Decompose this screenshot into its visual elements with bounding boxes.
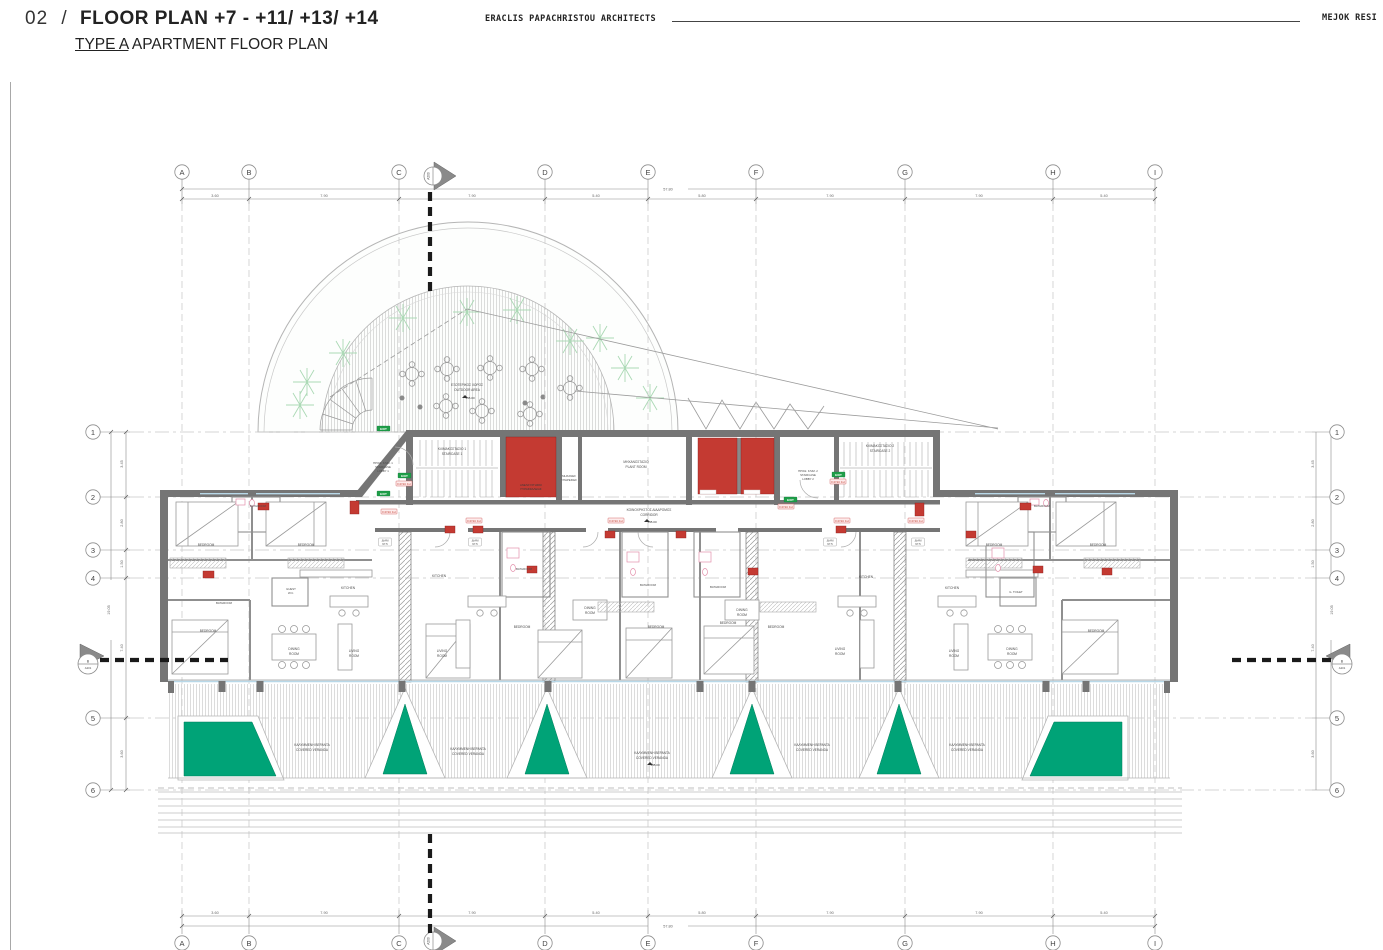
room-label-corridor: ΚΟΙΝΟΧΡΗΣΤΟΣ ΔΙΑΔΡΟΜΟΣ — [627, 508, 672, 512]
grid-bubbles-bottom: A B C D E F G H I — [175, 936, 1162, 950]
grid-number: 5 — [91, 714, 95, 723]
veranda — [158, 680, 1182, 788]
area-tag: 97.5 — [472, 542, 478, 546]
dim-text: 7.40 — [1311, 644, 1315, 651]
grid-letter: A — [179, 939, 184, 948]
dim-text: 3.60 — [211, 911, 218, 915]
fire-tag: F.R.SC 1H — [835, 519, 848, 523]
dim-text: 3.60 — [1311, 750, 1315, 757]
grid-letter: H — [1050, 939, 1055, 948]
room-label-kitchen: KITCHEN — [341, 586, 356, 590]
dim-text: 3.60 — [211, 194, 218, 198]
grid-letter: D — [542, 939, 548, 948]
sheet-page: 02 / FLOOR PLAN +7 - +11/ +13/ +14 TYPE … — [0, 0, 1383, 950]
grid-letter: H — [1050, 168, 1055, 177]
elevator-2 — [741, 438, 774, 494]
dim-text: 5.80 — [698, 194, 705, 198]
grid-letter: A — [179, 168, 184, 177]
fire-tag: F.R.SC 1H — [467, 519, 480, 523]
section-marker-top: A200 — [424, 162, 456, 190]
dim-text: 5.40 — [1100, 911, 1107, 915]
room-label-veranda: COVERED VERANDA — [951, 748, 984, 752]
dim-text: 5.40 — [592, 194, 599, 198]
grid-letter: G — [902, 939, 908, 948]
room-label-dining: ROOM — [737, 613, 747, 617]
room-label-veranda: COVERED VERANDA — [796, 748, 829, 752]
fire-tag: F.R.SC 1H — [609, 519, 622, 523]
room-label-services: ΥΠΗΡΕΣΙΕΣ — [561, 478, 577, 482]
exit-tag: EXIT — [380, 427, 387, 431]
outdoor-area-label-en: OUTDOOR AREA — [454, 388, 481, 392]
room-label-veranda: ΚΑΛΥΜΜΕΝΗ ΒΕΡΑΝΤΑ — [949, 743, 985, 747]
room-label-dining: ROOM — [585, 611, 595, 615]
section-sheet-ref: A201 — [85, 666, 92, 670]
room-label-bedroom: BEDROOM — [720, 621, 737, 625]
room-label-g-toilet: G. TOILET — [1009, 590, 1023, 594]
grid-number: 4 — [91, 574, 95, 583]
dim-total: 19.05 — [1330, 605, 1334, 615]
room-label-veranda: COVERED VERANDA — [452, 752, 485, 756]
fire-tag: F.R.SC 1H — [397, 482, 410, 486]
grid-bubbles-left: 1 2 3 4 5 6 — [86, 425, 100, 797]
room-label-lobby-2: LOBBY 2 — [802, 477, 814, 481]
outdoor-area-label-el: ΕΞΩΤΕΡΙΚΟΣ ΧΩΡΟΣ — [451, 383, 483, 387]
grid-number: 1 — [91, 428, 95, 437]
room-label-staircase-2: ΚΛΙΜΑΚΟΣΤΑΣΙΟ 2 — [866, 444, 894, 448]
dim-text: 3.45 — [120, 460, 124, 467]
room-label-bedroom: BEDROOM — [1090, 543, 1107, 547]
dim-text: 7.90 — [975, 194, 982, 198]
room-label-living: LIVING — [949, 649, 960, 653]
grid-number: 6 — [91, 786, 95, 795]
dim-text: 5.40 — [592, 911, 599, 915]
area-tag: 97.5 — [382, 542, 388, 546]
fire-tag: F.R.SC 1H — [382, 510, 395, 514]
fire-tag: F.R.SC 1H — [909, 519, 922, 523]
dim-total: 57.80 — [663, 925, 673, 929]
dim-text: 3.60 — [120, 750, 124, 757]
room-label-bedroom: BEDROOM — [298, 543, 315, 547]
dim-text: 7.90 — [468, 194, 475, 198]
room-label-plant-room: PLANT ROOM — [625, 465, 646, 469]
grid-letter: F — [754, 168, 759, 177]
room-label-staircase-1: STAIRCASE 1 — [442, 452, 463, 456]
dim-total: 19.05 — [107, 605, 111, 615]
room-label-living: LIVING — [349, 649, 360, 653]
grid-letter: D — [542, 168, 548, 177]
room-label-veranda: COVERED VERANDA — [296, 748, 329, 752]
grid-letter: B — [246, 168, 251, 177]
room-label-dining: DINING — [288, 647, 300, 651]
room-label-living: LIVING — [437, 649, 448, 653]
dim-text: 1.50 — [120, 560, 124, 567]
fire-tag: F.R.SC 1H — [779, 505, 792, 509]
grid-letter: E — [645, 939, 650, 948]
room-label-living: LIVING — [835, 647, 846, 651]
room-label-veranda: ΚΑΛΥΜΜΕΝΗ ΒΕΡΑΝΤΑ — [794, 743, 830, 747]
room-label-veranda: ΚΑΛΥΜΜΕΝΗ ΒΕΡΑΝΤΑ — [294, 743, 330, 747]
room-label-kitchen: KITCHEN — [859, 575, 874, 579]
room-label-dining: DINING — [736, 608, 748, 612]
grid-letter: C — [396, 939, 402, 948]
dim-text: 1.50 — [1311, 560, 1315, 567]
apartment-area-tags: ΔΙΑΜ97.5 ΔΙΑΜ97.5 ΔΙΑΜ97.5 ΔΙΑΜ97.5 — [379, 538, 925, 546]
exit-tag: EXIT — [380, 492, 387, 496]
entrance-steps — [158, 792, 1182, 833]
dimensions-top: 3.60 7.90 7.90 5.40 5.80 7.90 7.90 5.40 … — [180, 179, 1157, 204]
elevator-1 — [698, 438, 737, 494]
room-label-living: ROOM — [835, 652, 845, 656]
room-label-veranda: ΚΑΛΥΜΜΕΝΗ ΒΕΡΑΝΤΑ — [634, 751, 670, 755]
grid-number: 3 — [91, 546, 95, 555]
grid-letter: I — [1154, 939, 1156, 948]
room-label-veranda: COVERED VERANDA — [636, 756, 669, 760]
dim-text: 7.90 — [320, 194, 327, 198]
room-label-dining: ROOM — [1007, 652, 1017, 656]
area-tag: 97.5 — [827, 542, 833, 546]
dim-text: 2.80 — [1311, 519, 1315, 526]
room-label-veranda: ΚΑΛΥΜΜΕΝΗ ΒΕΡΑΝΤΑ — [450, 747, 486, 751]
grid-number: 3 — [1335, 546, 1339, 555]
section-sheet-ref: A200 — [427, 937, 431, 945]
room-label-plant-room: ΜΗΧΑΝΟΣΤΑΣΙΟ — [623, 460, 649, 464]
dim-text: 7.90 — [975, 911, 982, 915]
roof-terrace — [258, 222, 678, 432]
exit-tag: EXIT — [835, 473, 842, 477]
dim-total: 57.80 — [663, 188, 673, 192]
fire-tag: F.R.SC 1H — [831, 480, 844, 484]
exit-tag: EXIT — [787, 498, 794, 502]
room-label-bathroom: BATHROOM — [216, 601, 233, 605]
dim-text: 7.90 — [468, 911, 475, 915]
room-label-living: ROOM — [949, 654, 959, 658]
room-label-guest-wc: W.C. — [288, 591, 294, 595]
room-label-kitchen: KITCHEN — [945, 586, 960, 590]
dim-text: 7.40 — [120, 644, 124, 651]
grid-number: 2 — [1335, 493, 1339, 502]
grid-letter: G — [902, 168, 908, 177]
section-cut-lines — [100, 192, 1332, 938]
dim-text: 7.90 — [320, 911, 327, 915]
area-tag: 97.5 — [915, 542, 921, 546]
grid-letter: B — [246, 939, 251, 948]
dim-text: 2.80 — [120, 519, 124, 526]
grid-number: 4 — [1335, 574, 1339, 583]
room-label-kitchen: KITCHEN — [432, 574, 447, 578]
room-label-bedroom: BEDROOM — [200, 629, 217, 633]
dim-text: 5.40 — [1100, 194, 1107, 198]
room-label-bathroom: BATHROOM — [710, 585, 727, 589]
room-label-bedroom: BEDROOM — [514, 625, 531, 629]
dimensions-left: 3.45 2.80 1.50 7.40 3.60 19.05 — [100, 430, 130, 792]
room-label-staircase-2: STAIRCASE 2 — [870, 449, 891, 453]
room-label-bathroom: BATHROOM — [250, 504, 267, 508]
room-label-bedroom: BEDROOM — [198, 543, 215, 547]
dim-text: 5.80 — [698, 911, 705, 915]
grid-number: 6 — [1335, 786, 1339, 795]
section-sheet-ref: A201 — [1339, 666, 1346, 670]
room-label-dining: DINING — [1006, 647, 1018, 651]
grid-letter: E — [645, 168, 650, 177]
room-label-bedroom: BEDROOM — [648, 625, 665, 629]
room-label-bathroom: BATHROOM — [516, 567, 533, 571]
room-label-bedroom: BEDROOM — [986, 543, 1003, 547]
grid-letter: C — [396, 168, 402, 177]
dimensions-right: 3.45 2.80 1.50 7.40 3.60 19.05 — [1311, 432, 1344, 790]
room-label-dining: DINING — [584, 606, 596, 610]
room-label-bedroom: BEDROOM — [1088, 629, 1105, 633]
room-label-living: ROOM — [349, 654, 359, 658]
room-label-corridor: CORRIDOR — [640, 513, 658, 517]
dim-text: 7.90 — [826, 911, 833, 915]
dim-text: 3.45 — [1311, 460, 1315, 467]
exit-tag: EXIT — [401, 474, 408, 478]
room-label-bathroom: BATHROOM — [1034, 504, 1051, 508]
room-label-dining: ROOM — [289, 652, 299, 656]
dim-text: 7.90 — [826, 194, 833, 198]
room-label-bathroom: BATHROOM — [640, 583, 657, 587]
room-label-living: ROOM — [437, 654, 447, 658]
floor-plan-drawing: ΕΞΩΤΕΡΙΚΟΣ ΧΩΡΟΣ OUTDOOR AREA +45.00 — [0, 0, 1383, 950]
section-sheet-ref: A200 — [427, 172, 431, 180]
grid-number: 5 — [1335, 714, 1339, 723]
dimensions-bottom: 3.60 7.90 7.90 5.40 5.80 7.90 7.90 5.40 … — [180, 910, 1157, 934]
room-label-bedroom: BEDROOM — [768, 625, 785, 629]
grid-letter: F — [754, 939, 759, 948]
room-label-lobby-1: LOBBY 1 — [377, 469, 389, 473]
grid-bubbles-top: A B C D E F G H I — [175, 165, 1162, 179]
grid-letter: I — [1154, 168, 1156, 177]
grid-number: 1 — [1335, 428, 1339, 437]
room-label-staircase-1: ΚΛΙΜΑΚΟΣΤΑΣΙΟ 1 — [438, 447, 466, 451]
grid-number: 2 — [91, 493, 95, 502]
room-label-fire-elevator: ΠΥΡΑΣΦΑΛΕΙΑΣ — [520, 487, 542, 491]
